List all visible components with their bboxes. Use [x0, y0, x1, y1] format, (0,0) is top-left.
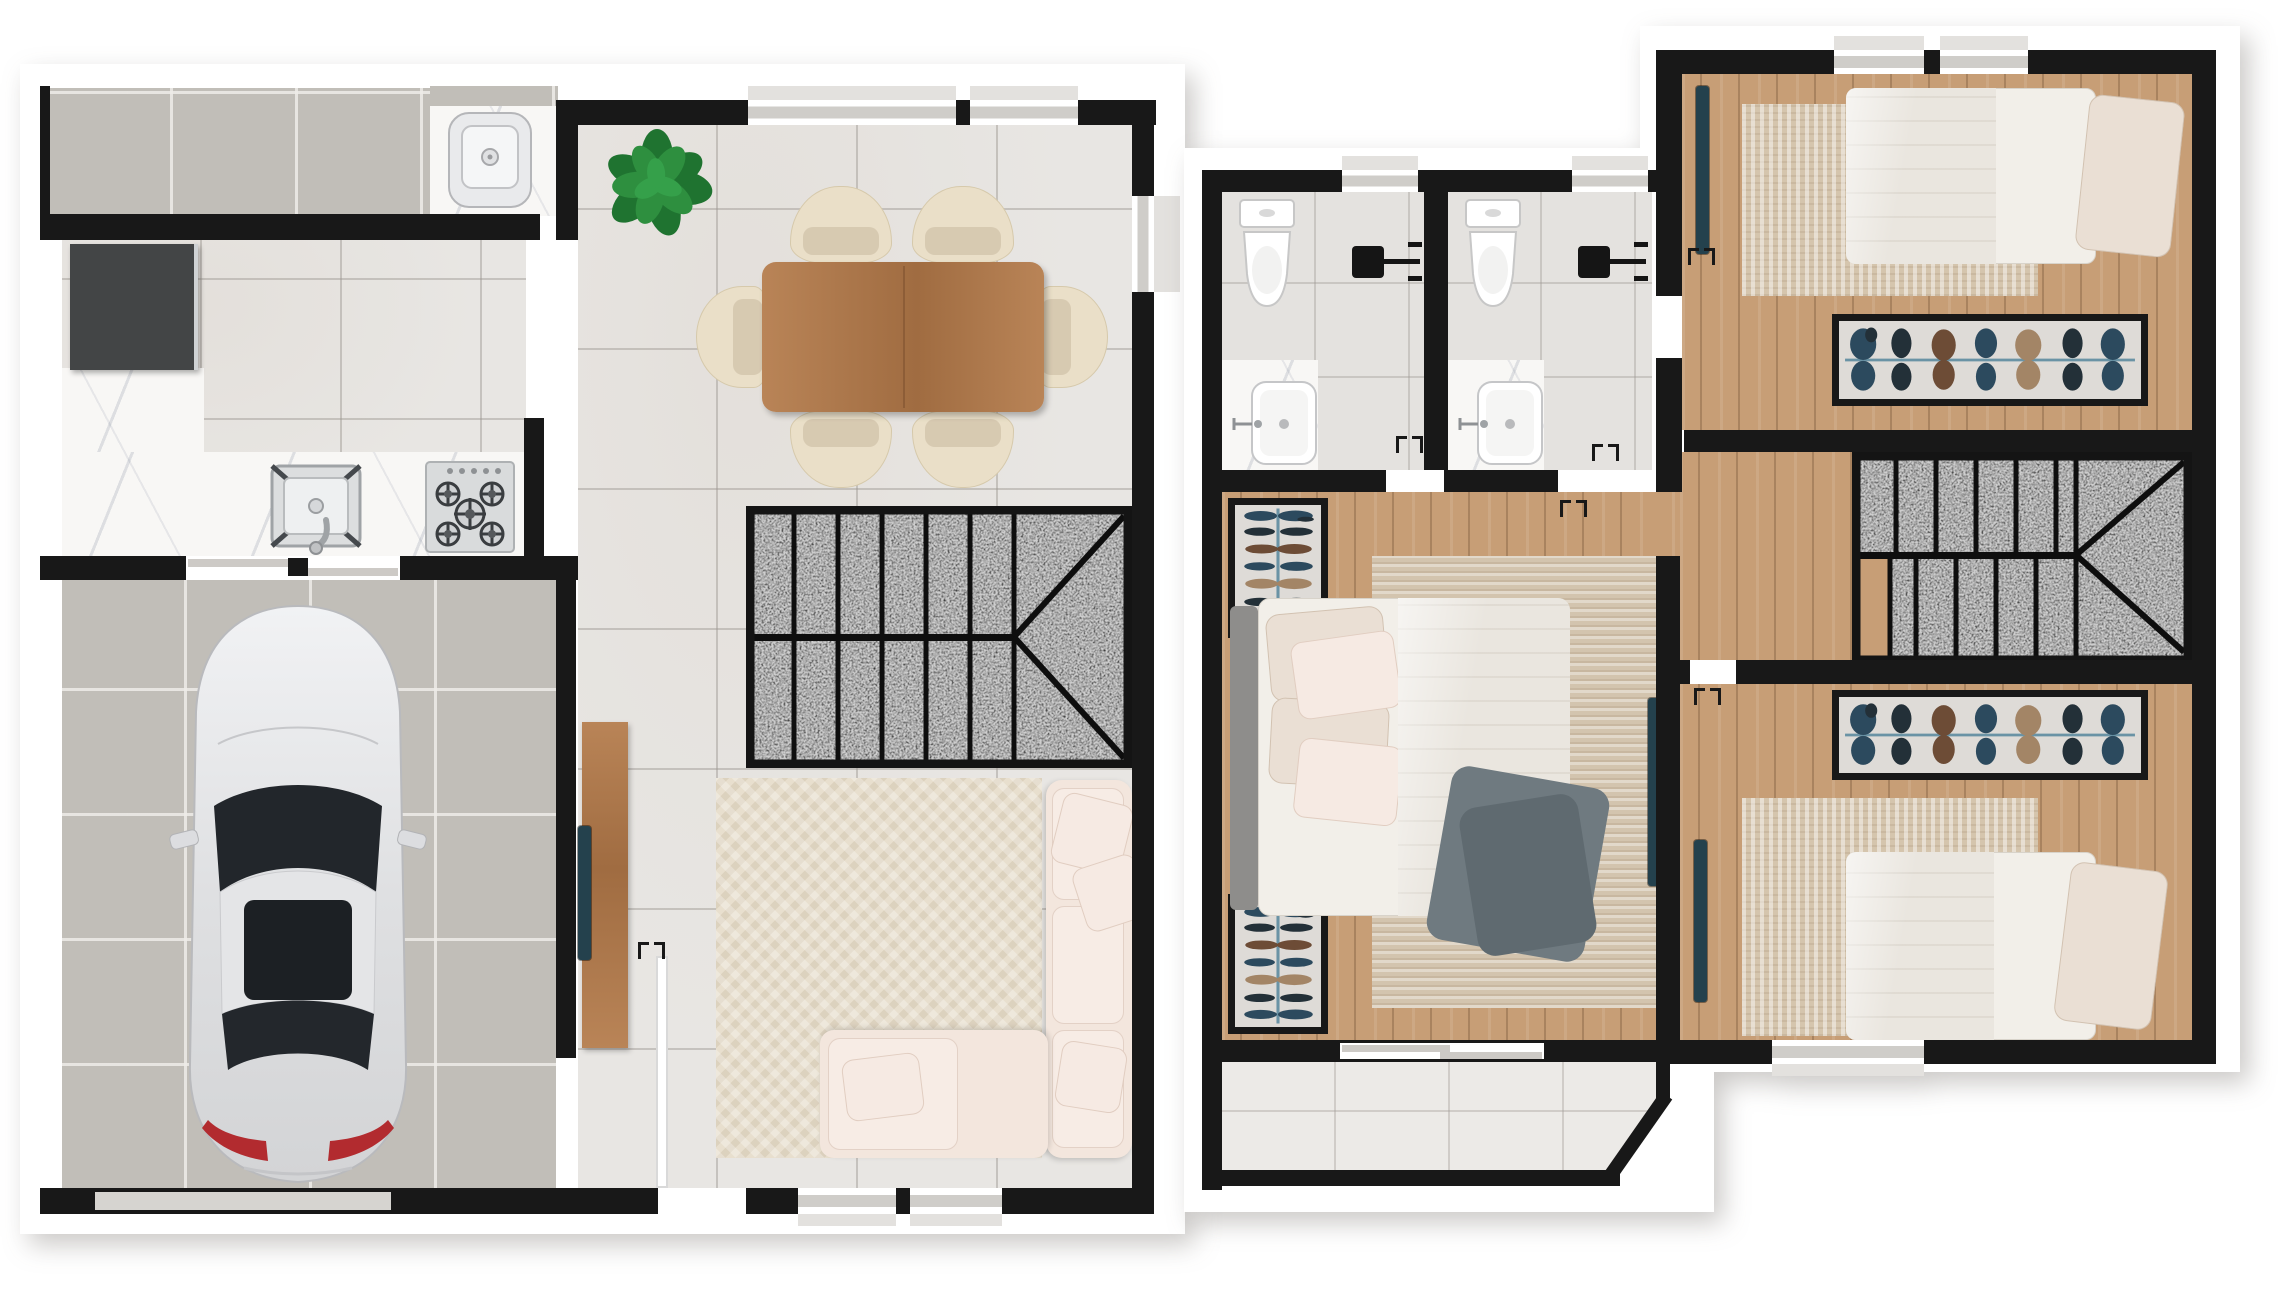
shower-arm — [1384, 259, 1420, 264]
sliding-door-panel — [1440, 1052, 1542, 1059]
wall — [1202, 170, 1222, 1190]
toilet — [1464, 198, 1522, 310]
toilet — [1238, 198, 1296, 310]
shower-handle — [1634, 242, 1648, 247]
shower-mixer — [1578, 246, 1610, 278]
balcony-floor — [1222, 1052, 1668, 1170]
window — [1772, 1040, 1924, 1064]
balcony-wall — [1656, 1052, 1670, 1102]
wall — [1656, 556, 1680, 1042]
upper-floor-plan — [0, 0, 2280, 1299]
master-pillow — [1289, 629, 1403, 721]
shower-handle — [1408, 242, 1422, 247]
wardrobe-clothes — [1839, 321, 2141, 399]
balcony-wall — [1208, 1170, 1620, 1186]
wall — [1656, 1040, 2216, 1064]
wall — [1424, 192, 1448, 492]
wall — [2192, 50, 2216, 1064]
bedroom2-door-opening — [1690, 660, 1736, 684]
television — [1694, 840, 1707, 1002]
shower-handle — [1408, 276, 1422, 281]
window — [1572, 170, 1648, 192]
wall — [1680, 660, 2216, 684]
door-swing-mark — [1576, 500, 1587, 517]
door-swing-mark — [1688, 248, 1699, 265]
master-bed-headboard — [1230, 606, 1258, 910]
door-swing-mark — [1694, 688, 1705, 705]
window-sill — [1940, 36, 2028, 50]
bedroom1-bed-duvet — [1846, 88, 1996, 264]
window-sill — [1772, 1064, 1924, 1076]
window — [1940, 50, 2028, 74]
bedroom2-pillow — [2053, 861, 2170, 1032]
bedroom1-pillow — [2074, 93, 2186, 258]
wardrobe-clothes — [1235, 902, 1321, 1026]
window-sill — [1342, 156, 1418, 170]
staircase-upper — [1852, 452, 2192, 664]
window — [1342, 170, 1418, 192]
floor-plan-canvas — [0, 0, 2280, 1299]
wall — [1656, 50, 1682, 492]
window-sill — [1834, 36, 1924, 50]
bedroom2-bed-duvet — [1846, 852, 1994, 1040]
wardrobe — [1832, 690, 2148, 780]
master-pillow — [1292, 737, 1404, 827]
window — [1834, 50, 1924, 74]
shower-mixer — [1352, 246, 1384, 278]
bathroom1-door-opening — [1386, 470, 1444, 492]
shower-handle — [1634, 276, 1648, 281]
wardrobe-clothes-wrap — [1235, 902, 1321, 1026]
shower-arm — [1610, 259, 1646, 264]
door-swing-mark — [1412, 436, 1423, 453]
washbasin — [1454, 378, 1546, 468]
door-swing-mark — [1560, 500, 1571, 517]
door-swing-mark — [1710, 688, 1721, 705]
wardrobe-clothes — [1839, 697, 2141, 773]
washbasin — [1228, 378, 1320, 468]
door-swing-mark — [1704, 248, 1715, 265]
door-swing-mark — [1592, 444, 1603, 461]
staircase-graphic — [1852, 452, 2192, 664]
wall — [1656, 50, 2216, 74]
throw-blanket-fold — [1457, 792, 1599, 959]
window-sill — [1572, 156, 1648, 170]
door-swing-mark — [1396, 436, 1407, 453]
door-swing-mark — [1608, 444, 1619, 461]
hallway-floor — [1680, 452, 1852, 660]
bedroom1-door-opening — [1656, 296, 1682, 358]
wall — [1684, 430, 2216, 452]
television — [1696, 86, 1709, 254]
wardrobe — [1832, 314, 2148, 406]
wall — [1202, 470, 1558, 492]
sliding-door-panel — [1342, 1045, 1450, 1052]
